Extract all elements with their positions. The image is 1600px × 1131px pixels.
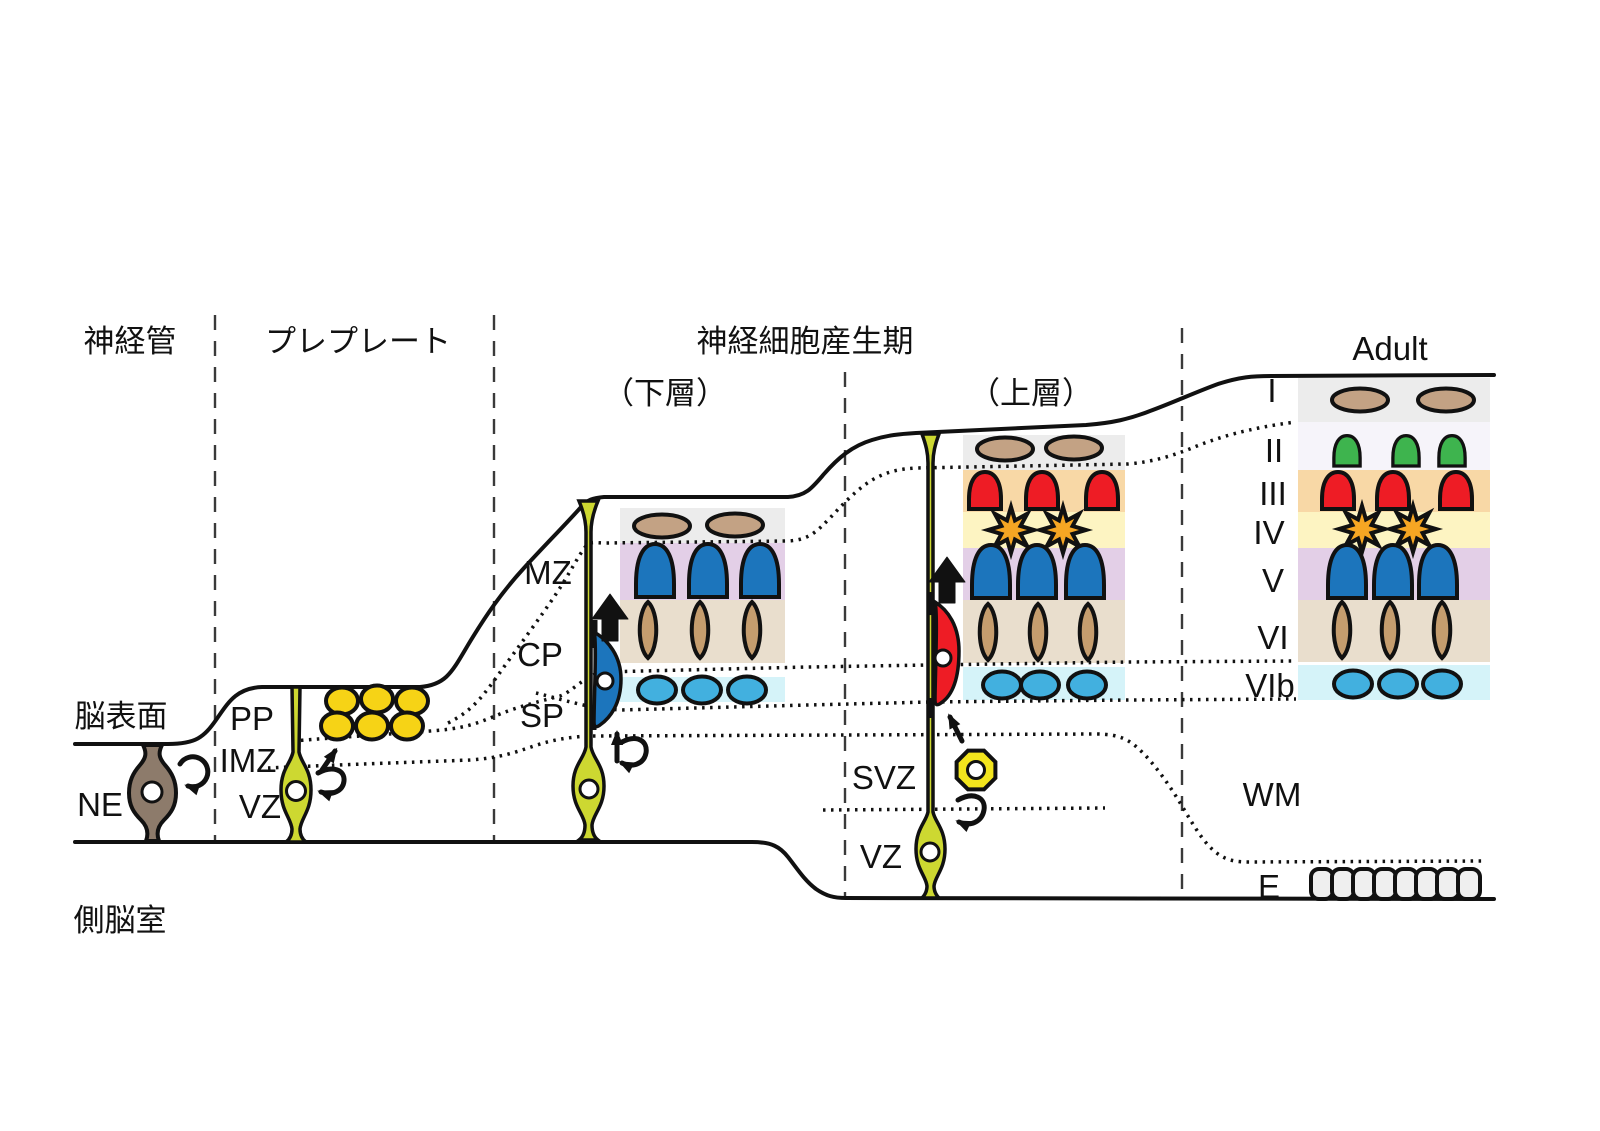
layer-label-v: V <box>1262 562 1284 599</box>
zone-label-pp: PP <box>230 700 274 737</box>
substage-label-upper-layers: （上層） <box>969 376 1093 411</box>
layer5-neuron <box>1328 545 1366 598</box>
self-renewal-curved-arrow <box>318 769 344 793</box>
zone-label-imz: IMZ <box>220 742 277 779</box>
layer2-neuron <box>1439 436 1465 466</box>
layer6-neuron <box>980 604 997 660</box>
cajal-retzius-cell <box>1046 437 1102 460</box>
cell-nucleus <box>597 673 613 689</box>
layer-label-i: I <box>1267 372 1276 409</box>
self-renewal-curved-arrow <box>622 739 646 766</box>
ependymal-cell <box>1311 869 1333 899</box>
header-labels: 神経管 プレプレート 神経細胞産生期 （下層） （上層） Adult <box>84 324 1428 411</box>
layer5-neuron <box>1066 545 1104 598</box>
stage-label-neurogenesis: 神経細胞産生期 <box>697 324 914 359</box>
layer6-neuron <box>1030 604 1047 660</box>
cortical-development-diagram: 神経管 プレプレート 神経細胞産生期 （下層） （上層） Adult 脳表面 側… <box>0 0 1600 1131</box>
ependymal-cell <box>1395 869 1417 899</box>
ependymal-cell <box>1332 869 1354 899</box>
layer1-cell <box>1332 389 1388 412</box>
cajal-retzius-cell <box>977 438 1033 461</box>
preplate-split-boundary <box>293 661 1296 741</box>
layer3-neuron <box>1322 472 1354 509</box>
self-renewal-rotation-arrow <box>180 757 208 787</box>
cell-nucleus <box>142 782 162 802</box>
layer6-neuron <box>744 602 761 658</box>
neurogenesis-arrow <box>950 717 962 741</box>
layer-label-iii: III <box>1259 475 1287 512</box>
ependymal-cell <box>1416 869 1438 899</box>
layer6-neuron <box>1080 604 1097 660</box>
layer3-neuron <box>969 472 1001 509</box>
cell-nucleus <box>580 780 598 798</box>
layer5-neurons <box>972 545 1104 598</box>
cell-nucleus <box>921 843 939 861</box>
subplate-neuron <box>1021 672 1059 699</box>
ventricular-surface-line <box>75 842 1494 899</box>
cell-nucleus <box>968 762 985 779</box>
substage-label-deep-layers: （下層） <box>603 376 727 411</box>
marginal-zone-boundary <box>448 422 1296 723</box>
preplate-neuron <box>396 688 428 715</box>
zone-label-wm: WM <box>1243 776 1302 813</box>
layer5-neuron <box>741 544 779 597</box>
preplate-neurons <box>321 686 428 740</box>
preplate-neuron <box>391 713 423 740</box>
layer5-neuron <box>689 544 727 597</box>
layer5-neuron <box>1018 545 1056 598</box>
ependymal-cell <box>1374 869 1396 899</box>
layer3-neuron <box>1026 472 1058 509</box>
layer5-neurons <box>636 544 779 597</box>
adult-layer-labels: I II III IV V VI VIb <box>1245 372 1295 704</box>
label-lateral-ventricle: 側脳室 <box>74 903 167 938</box>
subplate-neuron <box>638 677 676 704</box>
zone-label-cp: CP <box>517 636 563 673</box>
preplate-neuron <box>356 713 388 740</box>
layer2-neuron <box>1334 436 1360 466</box>
radial-glia-cell <box>281 687 311 842</box>
layer3-neuron <box>1086 472 1118 509</box>
layer6b-neuron <box>1379 671 1417 698</box>
layer6-neuron <box>640 602 657 658</box>
subplate-neurons <box>638 677 766 704</box>
label-brain-surface: 脳表面 <box>75 699 168 734</box>
layer6-neuron <box>692 602 709 658</box>
zone-label-sp: SP <box>520 697 564 734</box>
layer6-neuron <box>1382 602 1399 658</box>
layer6-neuron <box>1334 602 1351 658</box>
layer3-neurons <box>969 472 1118 509</box>
cell-nucleus <box>935 650 951 666</box>
cajal-retzius-cell <box>634 515 690 538</box>
layer6-neuron <box>1434 602 1451 658</box>
cajal-retzius-cell <box>707 514 763 537</box>
ependymal-cell <box>1437 869 1459 899</box>
layer2-neurons <box>1334 436 1465 466</box>
stage-neural-tube <box>129 745 208 841</box>
stage-label-adult: Adult <box>1352 330 1427 367</box>
leading-process <box>931 592 932 615</box>
svz-bottom-boundary <box>823 808 1105 810</box>
preplate-neuron <box>321 713 353 740</box>
layer-label-ii: II <box>1265 432 1283 469</box>
stage-label-neural-tube: 神経管 <box>84 324 177 359</box>
preplate-neuron <box>361 686 393 713</box>
layer5-neuron <box>972 545 1010 598</box>
zone-label-mz: MZ <box>524 554 572 591</box>
layer3-neuron <box>1440 472 1472 509</box>
preplate-neuron <box>326 688 358 715</box>
layer1-cell <box>1418 389 1474 412</box>
layer-label-vib: VIb <box>1245 667 1295 704</box>
layer6b-neuron <box>1334 671 1372 698</box>
subplate-neurons <box>983 672 1106 699</box>
layer6b-neuron <box>1423 671 1461 698</box>
layer-label-iv: IV <box>1253 514 1284 551</box>
self-renewal-curved-arrow <box>958 796 984 824</box>
cortical-development-figure: 神経管 プレプレート 神経細胞産生期 （下層） （上層） Adult 脳表面 側… <box>0 0 1600 1131</box>
zone-label-vz: VZ <box>239 788 281 825</box>
zone-label-ependyma: E <box>1258 868 1280 905</box>
layer3-neurons <box>1322 472 1472 509</box>
zone-label-ne: NE <box>77 786 123 823</box>
layer5-neuron <box>636 544 674 597</box>
subplate-neuron <box>683 677 721 704</box>
layer-label-vi: VI <box>1257 619 1288 656</box>
layer5-neuron <box>1374 545 1412 598</box>
layer5-neurons <box>1328 545 1457 598</box>
cell-nucleus <box>287 782 306 801</box>
zone-label-vz-late: VZ <box>860 838 902 875</box>
layer5-neuron <box>1419 545 1457 598</box>
stage-label-preplate: プレプレート <box>265 324 451 359</box>
subplate-neurons <box>1334 671 1461 698</box>
ependymal-cell <box>1353 869 1375 899</box>
layer2-neuron <box>1393 436 1419 466</box>
ependymal-cells <box>1311 869 1480 899</box>
subplate-neuron <box>728 677 766 704</box>
ependymal-cell <box>1458 869 1480 899</box>
layer3-neuron <box>1377 472 1409 509</box>
zone-label-svz: SVZ <box>852 759 916 796</box>
subplate-neuron <box>1068 672 1106 699</box>
subplate-neuron <box>983 672 1021 699</box>
